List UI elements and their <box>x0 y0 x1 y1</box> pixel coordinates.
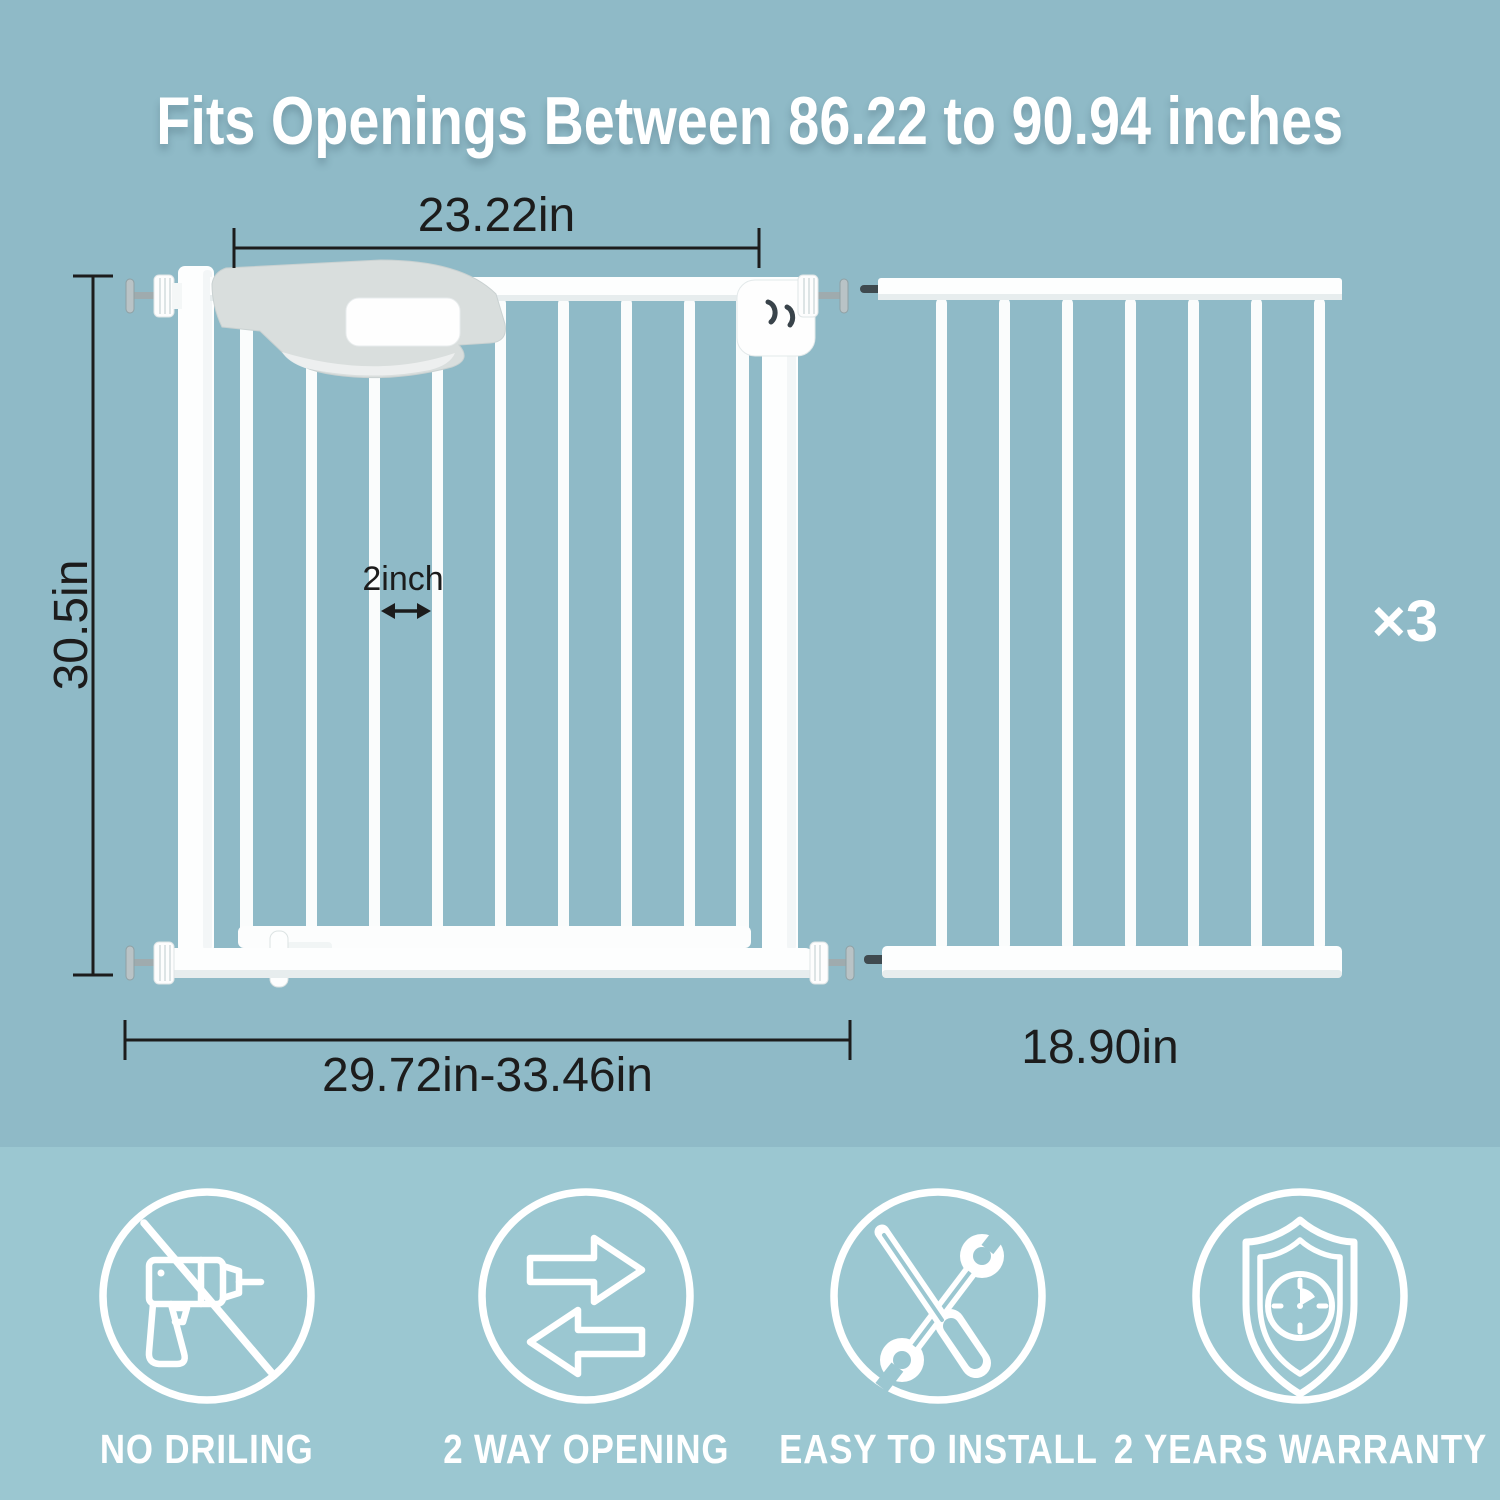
gate-bottom-rail-shading <box>162 970 814 978</box>
feature-easy-to-install: EASY TO INSTALL <box>758 1176 1118 1473</box>
two-way-opening-icon <box>466 1176 706 1416</box>
dim-door-width-label: 23.22in <box>234 188 759 243</box>
dim-bar-gap-label: 2inch <box>306 560 500 599</box>
easy-to-install-icon <box>818 1176 1058 1416</box>
gate-spindle-top-left <box>126 275 182 317</box>
extension-width-label: 18.90in <box>950 1020 1250 1075</box>
two-years-warranty-icon <box>1180 1176 1420 1416</box>
extension-panel-illustration <box>860 278 1342 978</box>
extension-quantity-label: ×3 <box>1320 588 1490 655</box>
feature-label: 2 WAY OPENING <box>443 1426 729 1473</box>
extension-top-rail-shading <box>878 294 1342 300</box>
gate-spindle-bottom-left <box>126 942 174 984</box>
gate-handle-assembly <box>212 260 505 378</box>
gate-spindle-top-right <box>798 275 848 317</box>
gate-right-post-shading <box>787 281 796 950</box>
feature-label: NO DRILING <box>100 1426 314 1473</box>
extension-bottom-rail-shading <box>882 970 1342 978</box>
gate-spindle-bottom-right <box>810 942 854 984</box>
gate-left-post-shading <box>203 270 212 950</box>
no-drilling-icon <box>87 1176 327 1416</box>
feature-label: EASY TO INSTALL <box>779 1426 1098 1473</box>
gate-bars <box>240 296 749 948</box>
extension-bars <box>936 298 1325 950</box>
pressure-gate-illustration <box>126 260 854 987</box>
dim-width-range-label: 29.72in-33.46in <box>125 1048 850 1103</box>
dim-height-label: 30.5in <box>43 475 99 775</box>
feature-no-drilling: NO DRILING <box>27 1176 387 1473</box>
gate-handle-button <box>346 298 460 346</box>
product-infographic: Fits Openings Between 86.22 to 90.94 inc… <box>0 0 1500 1500</box>
clock-hands <box>1300 1288 1315 1306</box>
feature-label: 2 YEARS WARRANTY <box>1113 1426 1486 1473</box>
feature-two-way-opening: 2 WAY OPENING <box>406 1176 766 1473</box>
feature-two-years-warranty: 2 YEARS WARRANTY <box>1120 1176 1480 1473</box>
